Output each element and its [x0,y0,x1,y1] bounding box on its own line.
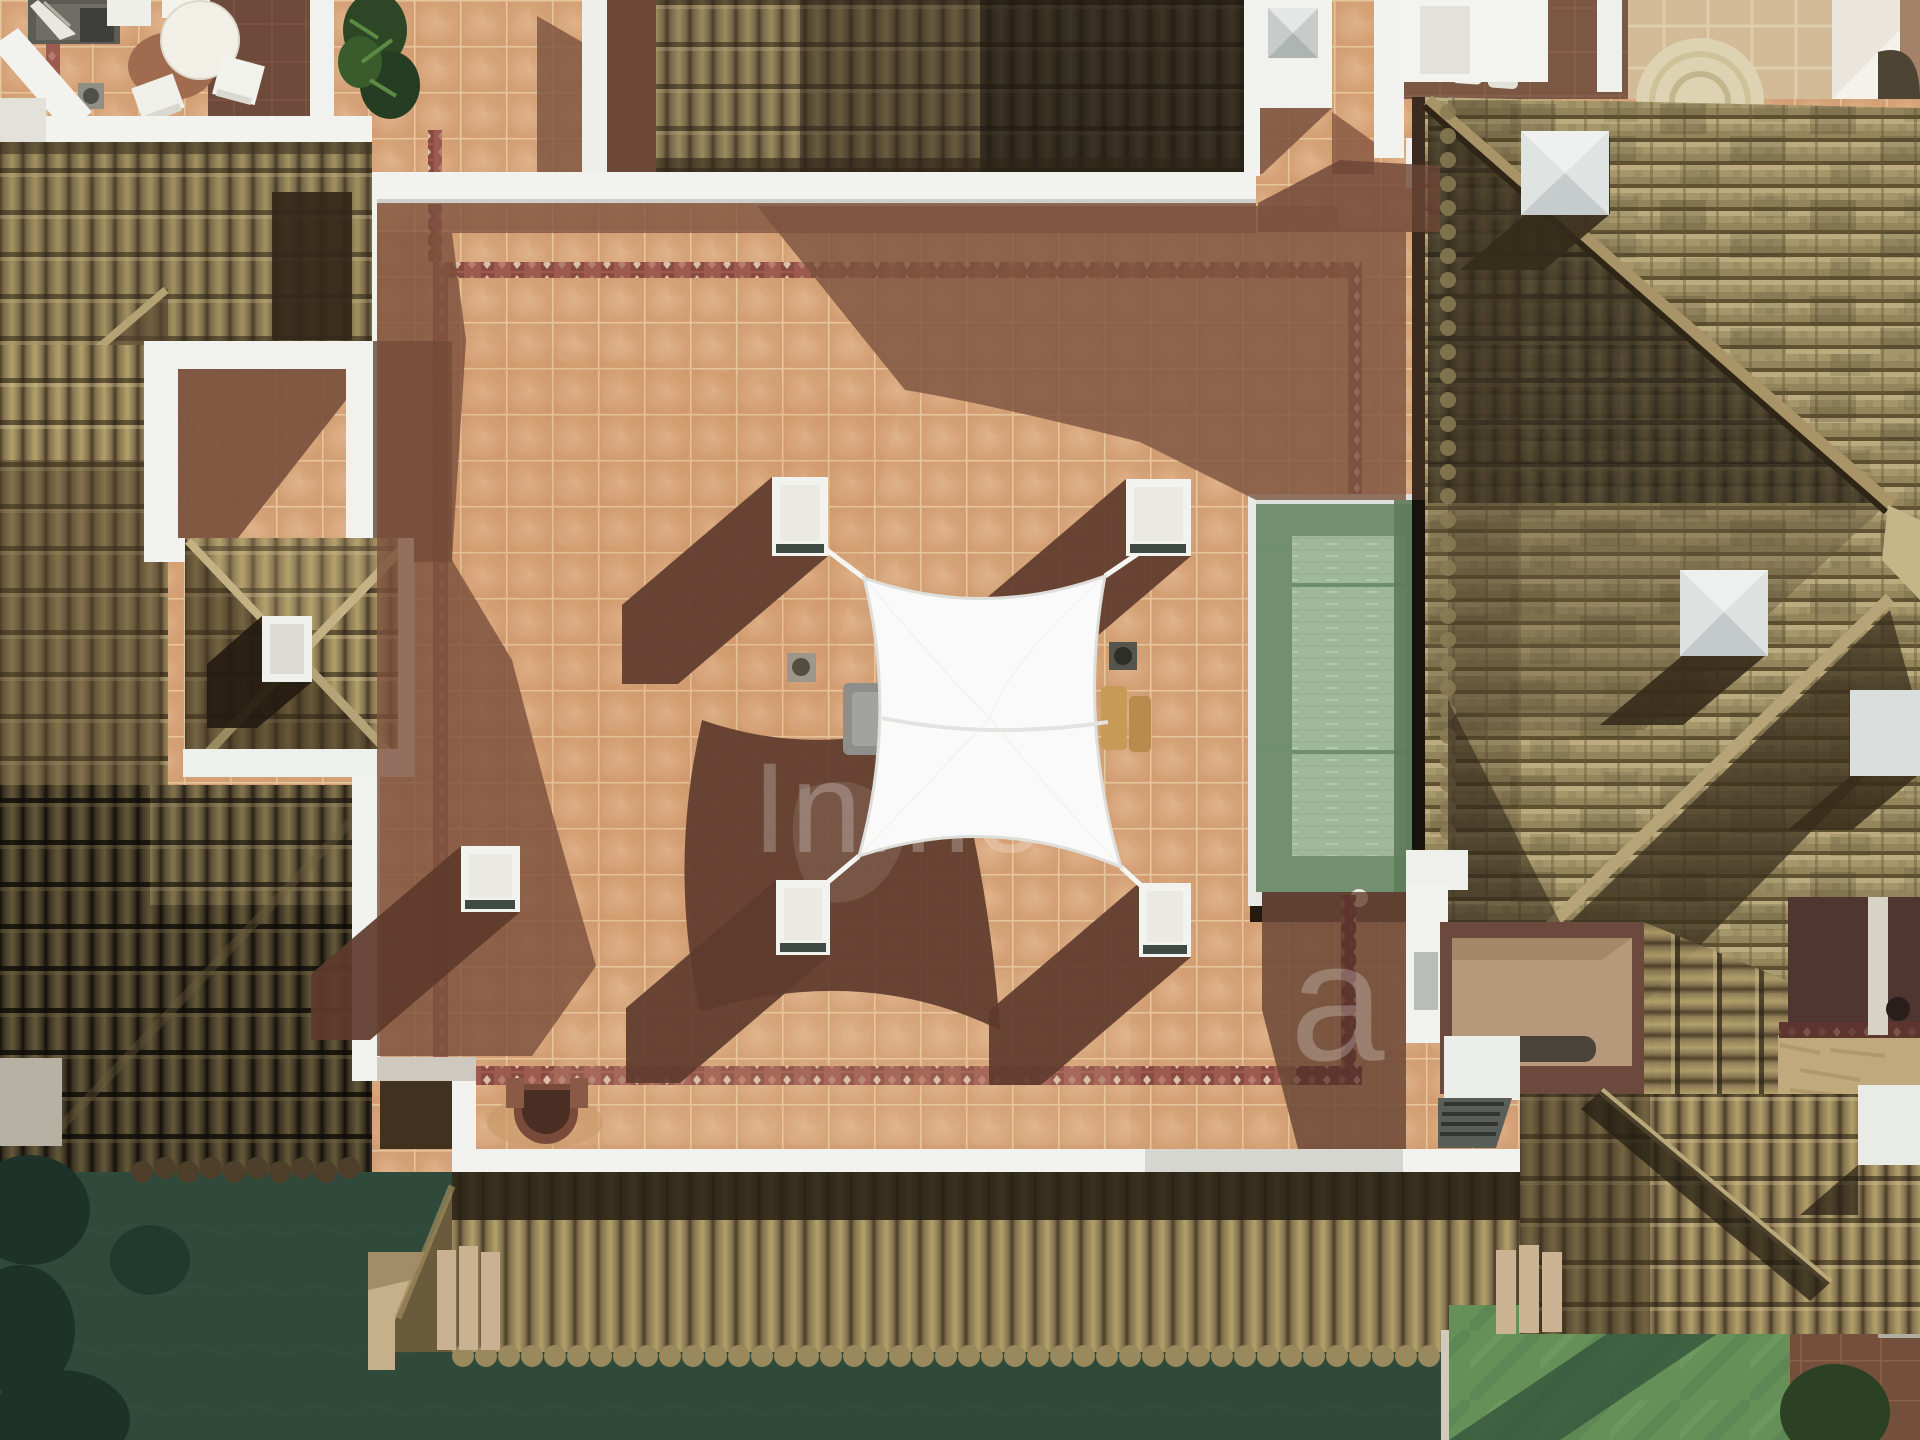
svg-text:a: a [1290,907,1385,1097]
